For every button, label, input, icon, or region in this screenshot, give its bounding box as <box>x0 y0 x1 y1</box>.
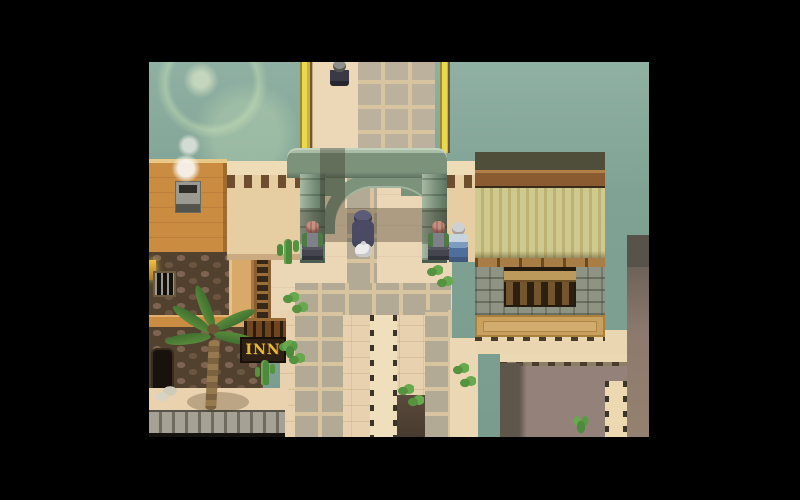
inn-sign-text: INN <box>245 343 280 357</box>
chimney-smoke-high <box>178 134 200 157</box>
stall-back-roof <box>475 152 605 170</box>
slab-path-south-east <box>425 310 452 437</box>
market-stall <box>475 152 605 343</box>
wall-shadow-band <box>300 208 447 242</box>
palm-shadow <box>187 392 249 412</box>
lower-pit <box>397 395 425 437</box>
east-shadow-ground <box>627 235 649 269</box>
east-town-wall <box>605 381 627 437</box>
yellow-wall-left <box>300 62 310 162</box>
south-west-ledge <box>149 410 285 435</box>
chimney-smoke <box>171 155 201 182</box>
map-edge-void <box>149 433 285 437</box>
stall-roof-beam <box>475 170 605 188</box>
palm-crown <box>207 324 219 334</box>
south-sand-strip <box>450 338 478 437</box>
inn-door[interactable] <box>153 350 172 391</box>
stall-foundation <box>475 315 605 337</box>
slab-path-south-west <box>295 310 343 437</box>
letterbox-stage: INN <box>0 0 800 500</box>
stall-foundation-edge <box>475 337 605 343</box>
stall-counter[interactable] <box>504 267 576 307</box>
inn-sign: INN <box>240 337 286 363</box>
east-rampart <box>447 161 475 262</box>
game-viewport[interactable]: INN <box>149 62 649 437</box>
chimney <box>175 181 201 213</box>
lens-flare-dot <box>183 62 219 98</box>
stall-awning <box>475 188 605 258</box>
arch-shadow-vertical <box>320 148 345 208</box>
barred-window <box>153 271 176 297</box>
yellow-wall-right <box>440 62 448 153</box>
south-wall-strip <box>370 315 397 437</box>
stall-front-beam <box>475 258 605 267</box>
east-outer-ground <box>627 267 649 437</box>
